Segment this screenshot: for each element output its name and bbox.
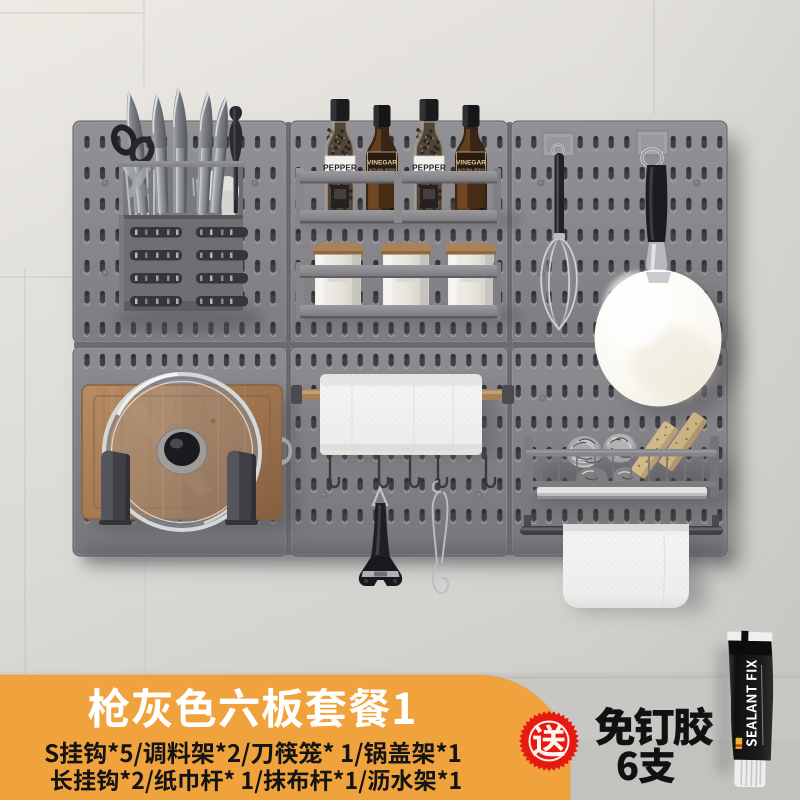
svg-text:VINEGAR: VINEGAR xyxy=(456,160,486,167)
svg-text:VINEGAR: VINEGAR xyxy=(367,160,397,167)
